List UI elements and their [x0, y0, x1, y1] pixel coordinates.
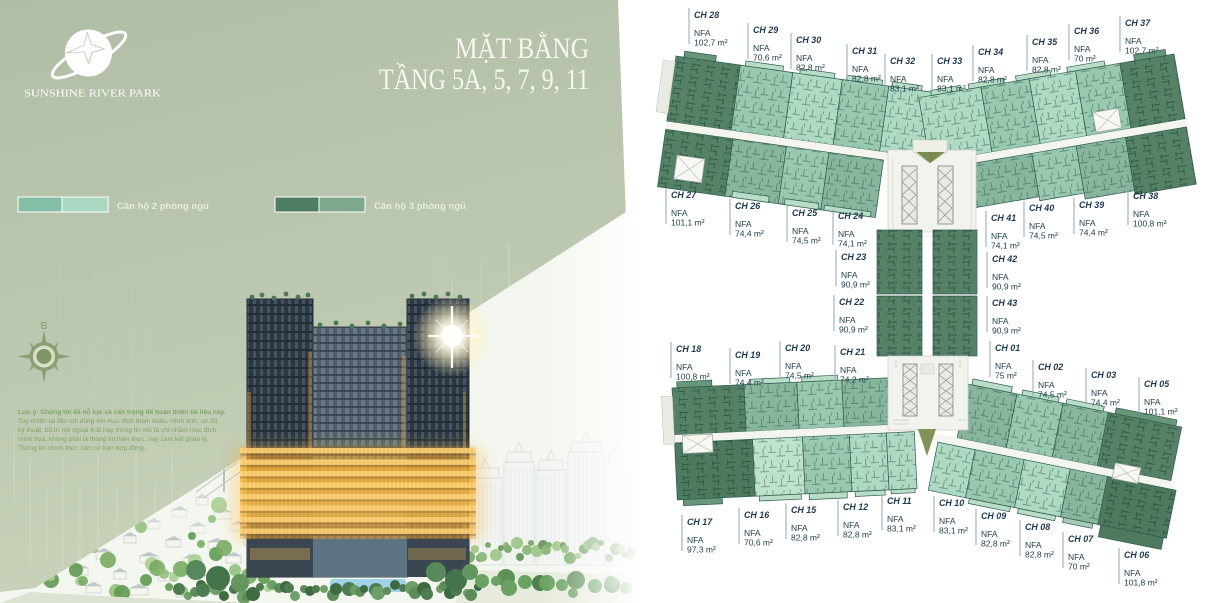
svg-text:NFA: NFA: [937, 74, 954, 84]
svg-text:CH 06: CH 06: [1124, 550, 1149, 560]
svg-text:NFA: NFA: [694, 28, 711, 38]
svg-text:83,1 m²: 83,1 m²: [937, 84, 966, 94]
svg-text:NFA: NFA: [1125, 36, 1142, 46]
svg-text:NFA: NFA: [887, 514, 904, 524]
svg-text:101,8 m²: 101,8 m²: [1124, 578, 1158, 588]
svg-text:CH 19: CH 19: [735, 350, 760, 360]
svg-text:102,7 m²: 102,7 m²: [694, 38, 728, 48]
svg-text:Tuy nhiên tài liệu chỉ dùng vớ: Tuy nhiên tài liệu chỉ dùng với mục đích…: [18, 416, 218, 425]
svg-text:NFA: NFA: [796, 53, 813, 63]
svg-text:CH 23: CH 23: [841, 252, 866, 262]
svg-text:82,8 m²: 82,8 m²: [978, 75, 1007, 85]
svg-text:NFA: NFA: [1079, 218, 1096, 228]
svg-text:CH 37: CH 37: [1125, 18, 1151, 28]
svg-text:CH 38: CH 38: [1133, 191, 1158, 201]
svg-text:100,8 m²: 100,8 m²: [676, 372, 710, 382]
svg-text:NFA: NFA: [1068, 552, 1085, 562]
svg-text:CH 42: CH 42: [992, 254, 1017, 264]
svg-text:70 m²: 70 m²: [1074, 54, 1096, 64]
svg-text:NFA: NFA: [1144, 397, 1161, 407]
svg-text:CH 21: CH 21: [840, 347, 865, 357]
svg-text:NFA: NFA: [890, 74, 907, 84]
svg-text:NFA: NFA: [687, 535, 704, 545]
svg-text:74,4 m²: 74,4 m²: [1079, 228, 1108, 238]
svg-text:CH 22: CH 22: [839, 297, 864, 307]
svg-text:TẦNG 5A, 5, 7, 9, 11: TẦNG 5A, 5, 7, 9, 11: [379, 62, 589, 96]
svg-text:82,8 m²: 82,8 m²: [796, 63, 825, 73]
svg-text:Thông tin chính thức căn cứ tr: Thông tin chính thức căn cứ trên hợp đồn…: [18, 443, 146, 452]
svg-text:SUNSHINE RIVER PARK: SUNSHINE RIVER PARK: [24, 89, 162, 100]
svg-text:Căn hộ 3 phòng ngủ: Căn hộ 3 phòng ngủ: [374, 201, 466, 212]
svg-text:Căn hộ 2 phòng ngủ: Căn hộ 2 phòng ngủ: [117, 201, 209, 212]
svg-text:NFA: NFA: [744, 528, 761, 538]
svg-text:CH 35: CH 35: [1032, 37, 1058, 47]
svg-text:100,8 m²: 100,8 m²: [1133, 219, 1167, 229]
svg-text:82,8 m²: 82,8 m²: [981, 539, 1010, 549]
svg-text:CH 33: CH 33: [937, 56, 962, 66]
svg-text:CH 11: CH 11: [887, 496, 912, 506]
svg-text:NFA: NFA: [839, 315, 856, 325]
svg-text:NFA: NFA: [1029, 221, 1046, 231]
svg-text:CH 20: CH 20: [785, 343, 810, 353]
svg-text:74,1 m²: 74,1 m²: [991, 241, 1020, 251]
svg-text:NFA: NFA: [1091, 388, 1108, 398]
svg-text:CH 28: CH 28: [694, 10, 719, 20]
svg-text:CH 24: CH 24: [838, 211, 863, 221]
svg-text:CH 17: CH 17: [687, 517, 713, 527]
svg-text:CH 34: CH 34: [978, 47, 1003, 57]
svg-text:90,9 m²: 90,9 m²: [839, 325, 868, 335]
svg-text:CH 05: CH 05: [1144, 379, 1170, 389]
svg-text:CH 29: CH 29: [753, 25, 778, 35]
svg-text:CH 32: CH 32: [890, 56, 915, 66]
svg-text:82,8 m²: 82,8 m²: [1032, 65, 1061, 75]
svg-text:CH 03: CH 03: [1091, 370, 1116, 380]
svg-text:NFA: NFA: [978, 65, 995, 75]
svg-text:kỹ thuật, bố trí nội ngoại thấ: kỹ thuật, bố trí nội ngoại thất hay thôn…: [18, 425, 217, 434]
svg-text:CH 02: CH 02: [1038, 362, 1063, 372]
svg-text:NFA: NFA: [785, 361, 802, 371]
svg-text:NFA: NFA: [981, 529, 998, 539]
svg-text:101,1 m²: 101,1 m²: [671, 218, 705, 228]
svg-text:Lưu ý: Chúng tôi đã nỗ lực và: Lưu ý: Chúng tôi đã nỗ lực và cẩn trọng …: [18, 407, 226, 416]
svg-text:NFA: NFA: [792, 226, 809, 236]
svg-text:CH 40: CH 40: [1029, 203, 1054, 213]
svg-text:CH 36: CH 36: [1074, 26, 1099, 36]
svg-text:CH 31: CH 31: [852, 46, 877, 56]
svg-text:NFA: NFA: [1025, 540, 1042, 550]
svg-text:70 m²: 70 m²: [1068, 562, 1090, 572]
svg-text:82,8 m²: 82,8 m²: [1025, 550, 1054, 560]
svg-text:90,9 m²: 90,9 m²: [841, 280, 870, 290]
svg-text:CH 43: CH 43: [992, 298, 1017, 308]
svg-text:CH 26: CH 26: [735, 201, 760, 211]
svg-text:NFA: NFA: [841, 270, 858, 280]
svg-text:NFA: NFA: [671, 208, 688, 218]
svg-text:NFA: NFA: [992, 316, 1009, 326]
svg-text:NFA: NFA: [840, 365, 857, 375]
svg-text:74,1 m²: 74,1 m²: [838, 239, 867, 249]
svg-text:CH 27: CH 27: [671, 190, 697, 200]
svg-text:NFA: NFA: [995, 361, 1012, 371]
svg-text:NFA: NFA: [735, 219, 752, 229]
svg-text:83,1 m²: 83,1 m²: [939, 526, 968, 536]
svg-text:97,3 m²: 97,3 m²: [687, 545, 716, 555]
svg-text:74,5 m²: 74,5 m²: [1038, 390, 1067, 400]
svg-text:CH 30: CH 30: [796, 35, 821, 45]
svg-text:NFA: NFA: [1032, 55, 1049, 65]
svg-text:74,4 m²: 74,4 m²: [735, 229, 764, 239]
svg-text:NFA: NFA: [992, 272, 1009, 282]
svg-text:NFA: NFA: [991, 231, 1008, 241]
svg-text:74,5 m²: 74,5 m²: [785, 371, 814, 381]
svg-text:NFA: NFA: [843, 520, 860, 530]
svg-text:NFA: NFA: [939, 516, 956, 526]
svg-text:NFA: NFA: [791, 523, 808, 533]
svg-text:CH 01: CH 01: [995, 343, 1020, 353]
svg-text:CH 15: CH 15: [791, 505, 817, 515]
svg-text:CH 07: CH 07: [1068, 534, 1094, 544]
svg-text:70,6 m²: 70,6 m²: [744, 538, 773, 548]
svg-text:101,1 m²: 101,1 m²: [1144, 407, 1178, 417]
svg-text:82,8 m²: 82,8 m²: [791, 533, 820, 543]
svg-text:75 m²: 75 m²: [995, 371, 1017, 381]
svg-text:CH 12: CH 12: [843, 502, 868, 512]
svg-text:CH 25: CH 25: [792, 208, 818, 218]
svg-text:NFA: NFA: [735, 368, 752, 378]
svg-text:70,6 m²: 70,6 m²: [753, 53, 782, 63]
svg-text:NFA: NFA: [838, 229, 855, 239]
svg-text:82,8 m²: 82,8 m²: [843, 530, 872, 540]
svg-text:CH 39: CH 39: [1079, 200, 1104, 210]
svg-text:74,2 m²: 74,2 m²: [840, 375, 869, 385]
svg-text:NFA: NFA: [1038, 380, 1055, 390]
svg-text:90,9 m²: 90,9 m²: [992, 326, 1021, 336]
svg-text:74,5 m²: 74,5 m²: [792, 236, 821, 246]
svg-text:CH 10: CH 10: [939, 498, 964, 508]
svg-text:NFA: NFA: [753, 43, 770, 53]
svg-text:CH 16: CH 16: [744, 510, 769, 520]
svg-text:74,5 m²: 74,5 m²: [1029, 231, 1058, 241]
svg-text:NFA: NFA: [676, 362, 693, 372]
svg-text:74,4 m²: 74,4 m²: [735, 378, 764, 388]
svg-text:NFA: NFA: [1124, 568, 1141, 578]
svg-text:NFA: NFA: [1074, 44, 1091, 54]
svg-text:NFA: NFA: [852, 64, 869, 74]
svg-text:CH 41: CH 41: [991, 213, 1016, 223]
svg-text:CH 09: CH 09: [981, 511, 1006, 521]
svg-text:83,1 m²: 83,1 m²: [887, 524, 916, 534]
svg-text:NFA: NFA: [1133, 209, 1150, 219]
svg-text:74,4 m²: 74,4 m²: [1091, 398, 1120, 408]
svg-text:82,8 m²: 82,8 m²: [852, 74, 881, 84]
svg-text:83,1 m²: 83,1 m²: [890, 84, 919, 94]
svg-text:MẶT BẰNG: MẶT BẰNG: [455, 31, 589, 65]
svg-text:102,7 m²: 102,7 m²: [1125, 46, 1159, 56]
svg-text:CH 18: CH 18: [676, 344, 701, 354]
svg-text:minh họa, không phải là thông: minh họa, không phải là thông tin hiện t…: [18, 434, 209, 443]
svg-text:CH 08: CH 08: [1025, 522, 1050, 532]
svg-text:90,9 m²: 90,9 m²: [992, 282, 1021, 292]
